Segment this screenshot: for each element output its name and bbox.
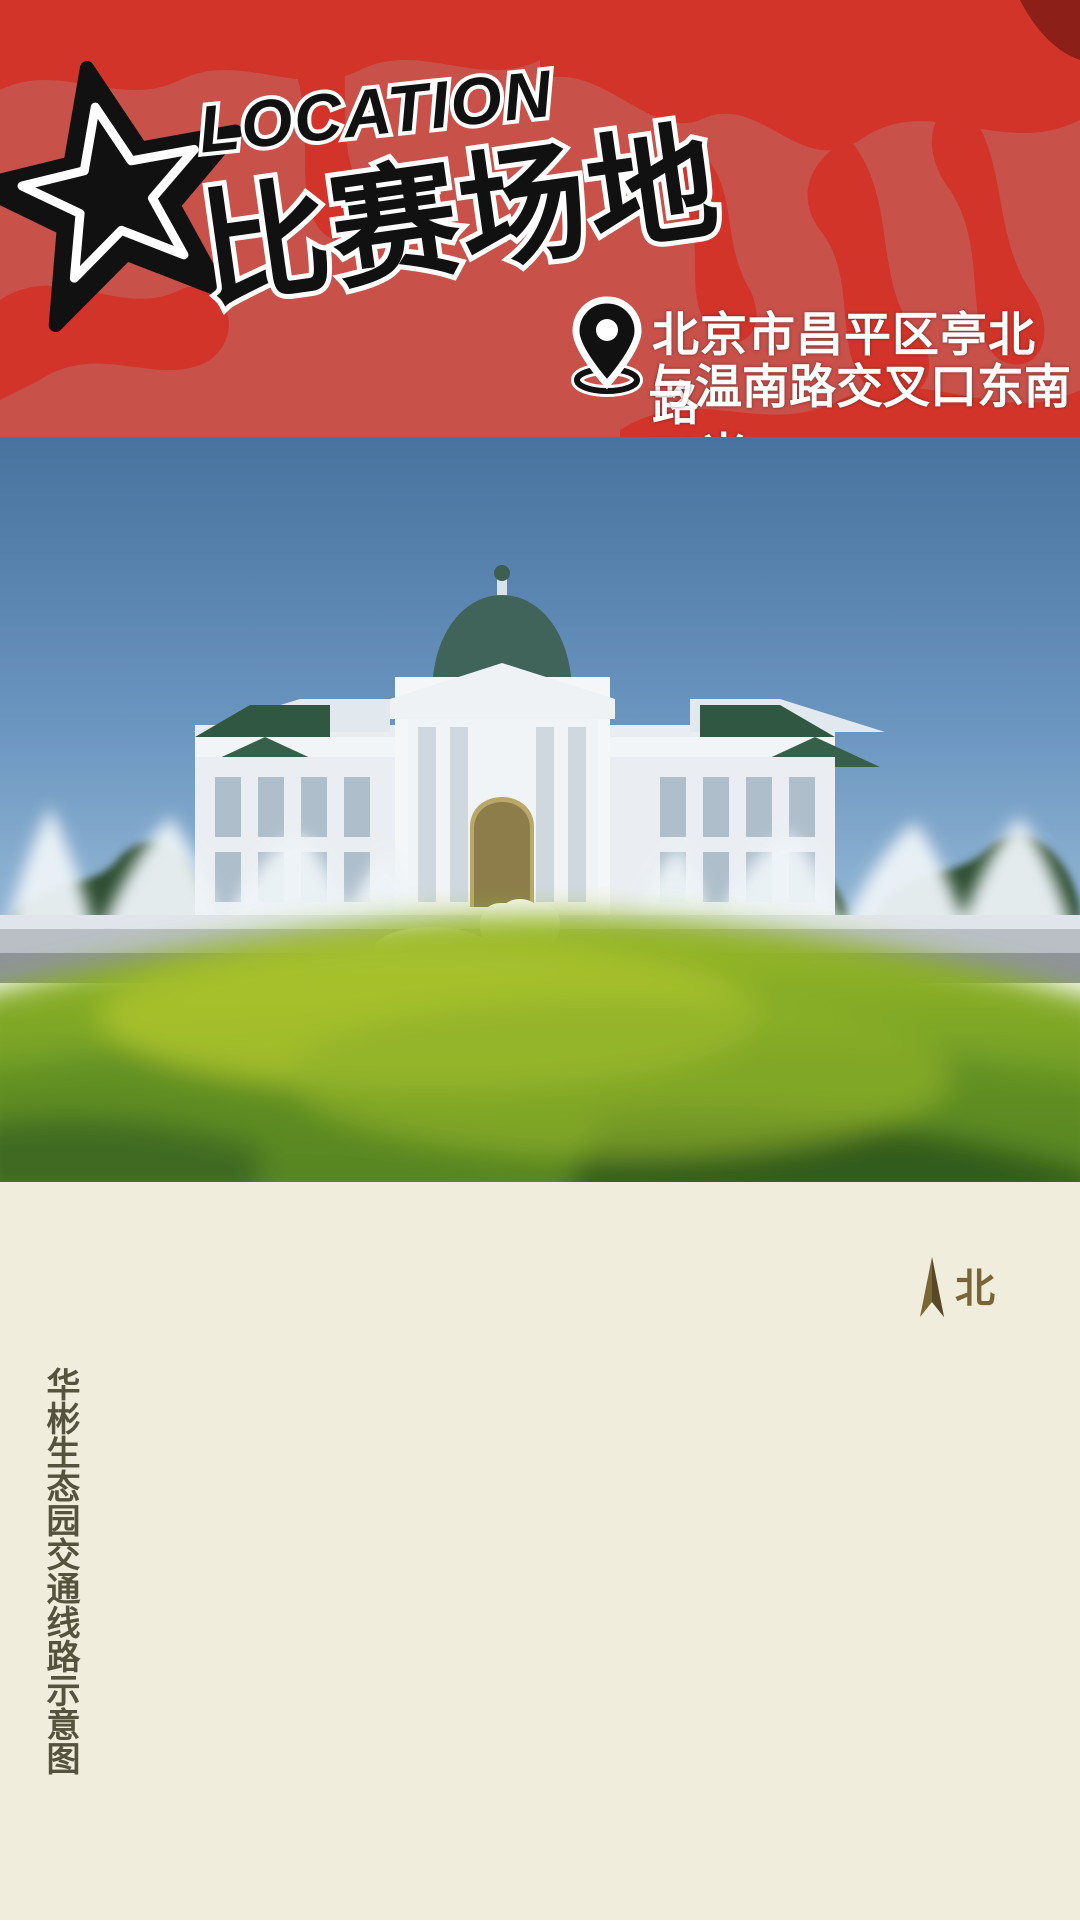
svg-text:华彬生态园交通线路示意图: 华彬生态园交通线路示意图	[41, 1367, 80, 1775]
svg-text:北: 北	[955, 1267, 995, 1311]
